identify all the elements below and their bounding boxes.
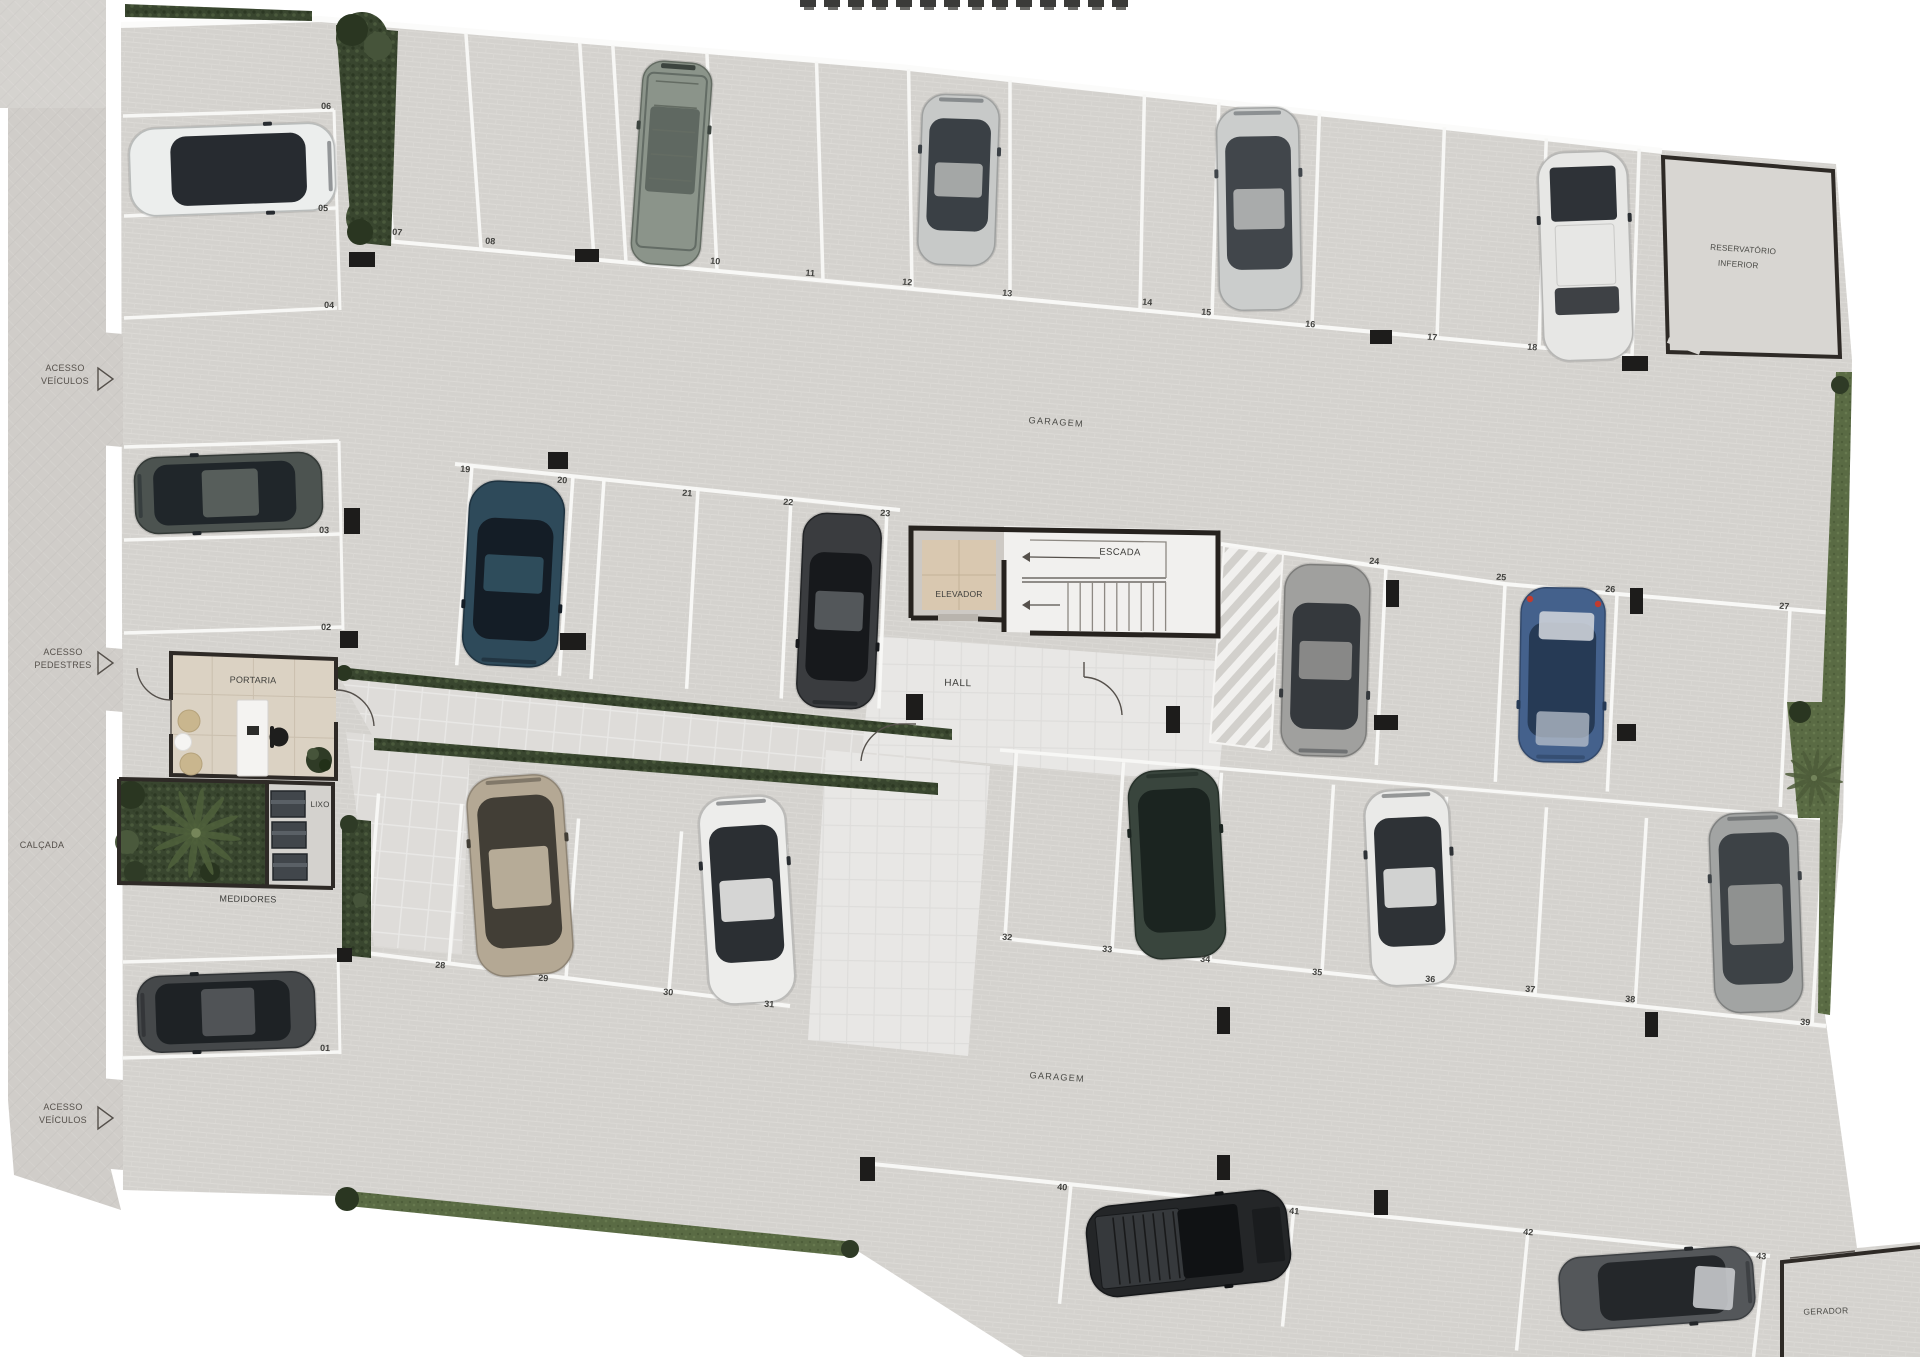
svg-text:18: 18 bbox=[1527, 342, 1538, 353]
svg-text:25: 25 bbox=[1496, 572, 1507, 583]
svg-text:PORTARIA: PORTARIA bbox=[230, 675, 277, 686]
svg-text:42: 42 bbox=[1523, 1227, 1534, 1238]
svg-text:04: 04 bbox=[324, 300, 334, 310]
svg-text:28: 28 bbox=[435, 960, 446, 971]
svg-text:HALL: HALL bbox=[944, 678, 972, 689]
svg-text:VEÍCULOS: VEÍCULOS bbox=[41, 376, 89, 386]
svg-text:LIXO: LIXO bbox=[310, 800, 329, 809]
svg-text:27: 27 bbox=[1779, 601, 1790, 612]
svg-text:06: 06 bbox=[321, 101, 331, 111]
svg-text:02: 02 bbox=[321, 622, 331, 632]
svg-text:26: 26 bbox=[1605, 584, 1616, 595]
svg-text:14: 14 bbox=[1142, 297, 1153, 308]
svg-text:ACESSO: ACESSO bbox=[43, 647, 82, 657]
svg-text:03: 03 bbox=[319, 525, 329, 535]
svg-text:23: 23 bbox=[880, 508, 891, 519]
svg-text:21: 21 bbox=[682, 488, 693, 499]
svg-text:34: 34 bbox=[1200, 954, 1211, 965]
svg-text:17: 17 bbox=[1427, 332, 1438, 343]
svg-text:20: 20 bbox=[557, 475, 568, 486]
svg-text:12: 12 bbox=[902, 277, 913, 288]
svg-text:30: 30 bbox=[663, 987, 674, 998]
svg-text:39: 39 bbox=[1800, 1017, 1811, 1028]
svg-text:MEDIDORES: MEDIDORES bbox=[219, 894, 276, 905]
svg-text:CALÇADA: CALÇADA bbox=[20, 840, 65, 850]
svg-text:PEDESTRES: PEDESTRES bbox=[34, 660, 91, 670]
svg-text:ELEVADOR: ELEVADOR bbox=[935, 589, 982, 599]
svg-text:19: 19 bbox=[460, 464, 471, 475]
svg-text:16: 16 bbox=[1305, 319, 1316, 330]
svg-text:01: 01 bbox=[320, 1043, 330, 1053]
svg-text:31: 31 bbox=[764, 999, 775, 1010]
svg-text:22: 22 bbox=[783, 497, 794, 508]
svg-text:40: 40 bbox=[1057, 1182, 1068, 1193]
svg-text:11: 11 bbox=[805, 268, 815, 279]
svg-text:38: 38 bbox=[1625, 994, 1636, 1005]
svg-text:10: 10 bbox=[710, 256, 721, 267]
svg-text:ACESSO: ACESSO bbox=[45, 363, 84, 373]
svg-text:35: 35 bbox=[1312, 967, 1323, 978]
svg-text:ESCADA: ESCADA bbox=[1099, 547, 1141, 559]
svg-text:07: 07 bbox=[392, 227, 403, 238]
svg-text:32: 32 bbox=[1002, 932, 1013, 943]
svg-text:29: 29 bbox=[538, 973, 549, 984]
svg-text:08: 08 bbox=[485, 236, 496, 247]
svg-text:41: 41 bbox=[1289, 1206, 1300, 1217]
svg-text:15: 15 bbox=[1201, 307, 1212, 318]
svg-text:05: 05 bbox=[318, 203, 328, 213]
svg-text:13: 13 bbox=[1002, 288, 1013, 299]
svg-text:GERADOR: GERADOR bbox=[1803, 1305, 1848, 1317]
svg-text:VEÍCULOS: VEÍCULOS bbox=[39, 1115, 87, 1125]
svg-text:33: 33 bbox=[1102, 944, 1113, 955]
svg-text:37: 37 bbox=[1525, 984, 1536, 995]
svg-text:ACESSO: ACESSO bbox=[43, 1102, 82, 1112]
svg-text:24: 24 bbox=[1369, 556, 1380, 567]
svg-text:43: 43 bbox=[1756, 1251, 1767, 1262]
svg-text:36: 36 bbox=[1425, 974, 1436, 985]
